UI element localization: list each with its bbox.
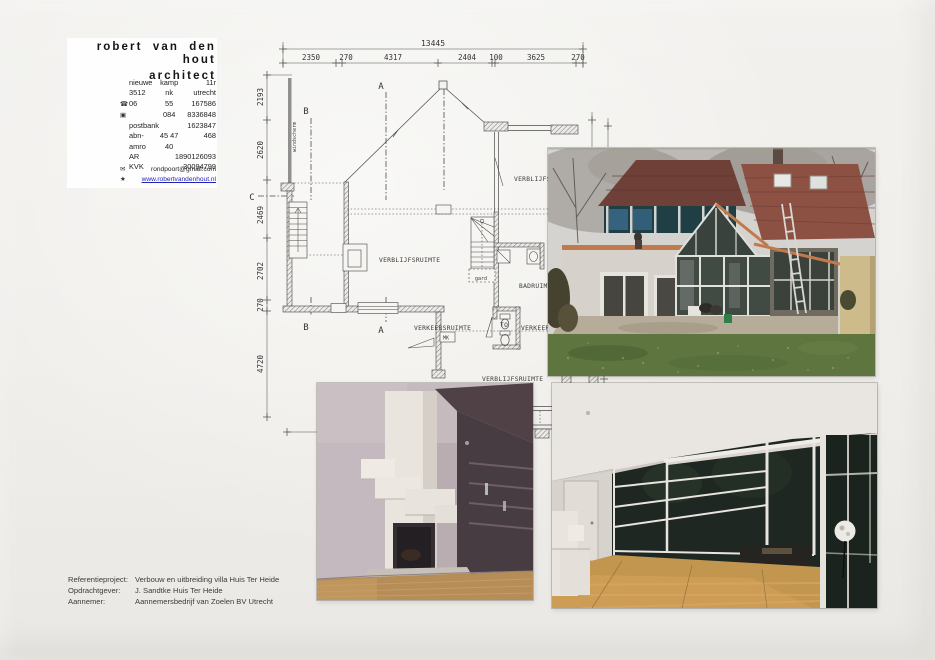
letterhead: robert van den hout architect nieuwekamp… xyxy=(67,38,217,188)
city-row: 3512nkutrecht xyxy=(120,88,216,98)
section-marker-a-bottom: A xyxy=(378,326,384,336)
dim-left-2: 2620 xyxy=(256,140,265,159)
scanned-architect-sheet: 13445 2350 270 4317 2404 100 3625 270 21… xyxy=(0,0,935,660)
room-label-living: VERBLIJFSRUIMTE xyxy=(379,257,440,264)
house-exterior-illustration xyxy=(548,148,875,376)
ar-row: AR1890126093 xyxy=(120,152,216,162)
online-contact-block: ✉rondpoort@gmail.com ★www.robertvandenho… xyxy=(120,165,216,184)
room-label-hall: VERKEERSRUIMTE xyxy=(414,325,471,332)
reference-project-label: Referentieproject: xyxy=(68,574,135,585)
room-label-living-bottom: VERBLIJFSRUIMTE xyxy=(482,376,543,383)
section-marker-a-top: A xyxy=(378,82,384,92)
client-label: Opdrachtgever: xyxy=(68,585,135,596)
dim-top-6: 3625 xyxy=(527,53,545,62)
photo-house-exterior xyxy=(548,148,875,376)
fireplace-interior-illustration xyxy=(317,383,533,600)
dim-top-4: 2404 xyxy=(458,53,477,62)
dim-top-7: 270 xyxy=(571,53,585,62)
website-row: ★www.robertvandenhout.nl xyxy=(120,175,216,185)
photo-glass-extension-interior xyxy=(552,383,877,608)
bank-row: abn-amro45 47 40468 xyxy=(120,131,216,152)
architect-name: robert van den hout xyxy=(67,41,217,67)
email-row: ✉rondpoort@gmail.com xyxy=(120,165,216,175)
meter-cupboard-label: MK xyxy=(443,336,449,342)
client-row: Opdrachtgever: J. Sandtke Huis Ter Heide xyxy=(68,585,279,596)
envelope-icon: ✉ xyxy=(120,165,136,175)
contact-block: nieuwekamp11r 3512nkutrecht ☎0655167586 … xyxy=(120,78,216,173)
room-label-toilet: TO xyxy=(500,322,508,329)
dim-left-3: 2469 xyxy=(256,206,265,224)
dim-top-2: 270 xyxy=(339,53,353,62)
dim-left-5: 270 xyxy=(256,298,265,312)
phone-icon: ☎ xyxy=(120,100,129,110)
room-label-wardrobe: gard xyxy=(475,276,487,282)
section-marker-b-bottom: B xyxy=(303,323,308,333)
fax-icon: ▣ xyxy=(120,111,129,121)
phone-row: ☎0655167586 xyxy=(120,99,216,110)
website-link[interactable]: www.robertvandenhout.nl xyxy=(136,175,216,185)
reference-project-value: Verbouw en uitbreiding villa Huis Ter He… xyxy=(135,574,279,585)
photo-fireplace-interior xyxy=(317,383,533,600)
reference-project-row: Referentieproject: Verbouw en uitbreidin… xyxy=(68,574,279,585)
client-value: J. Sandtke Huis Ter Heide xyxy=(135,585,223,596)
project-reference-block: Referentieproject: Verbouw en uitbreidin… xyxy=(68,574,279,608)
section-marker-b-top: B xyxy=(303,107,308,117)
dim-left-6: 4720 xyxy=(256,354,265,373)
dim-top-1: 2350 xyxy=(302,53,321,62)
windscreen-label: windscherm xyxy=(292,122,298,152)
dim-top-3: 4317 xyxy=(384,53,402,62)
contractor-label: Aannemer: xyxy=(68,596,135,607)
glass-extension-interior-illustration xyxy=(552,383,877,608)
postbank-row: postbank1623847 xyxy=(120,121,216,131)
contractor-row: Aannemer: Aannemersbedrijf van Zoelen BV… xyxy=(68,596,279,607)
contractor-value: Aannemersbedrijf van Zoelen BV Utrecht xyxy=(135,596,273,607)
email-address: rondpoort@gmail.com xyxy=(136,165,216,175)
address-row: nieuwekamp11r xyxy=(120,78,216,88)
star-icon: ★ xyxy=(120,175,136,185)
dim-left-4: 2702 xyxy=(256,262,265,280)
dim-top-5: 100 xyxy=(489,53,503,62)
fax-row: ▣0848336848 xyxy=(120,110,216,121)
dim-left-1: 2193 xyxy=(256,88,265,106)
dim-total: 13445 xyxy=(421,39,445,48)
section-marker-c: C xyxy=(249,193,254,203)
